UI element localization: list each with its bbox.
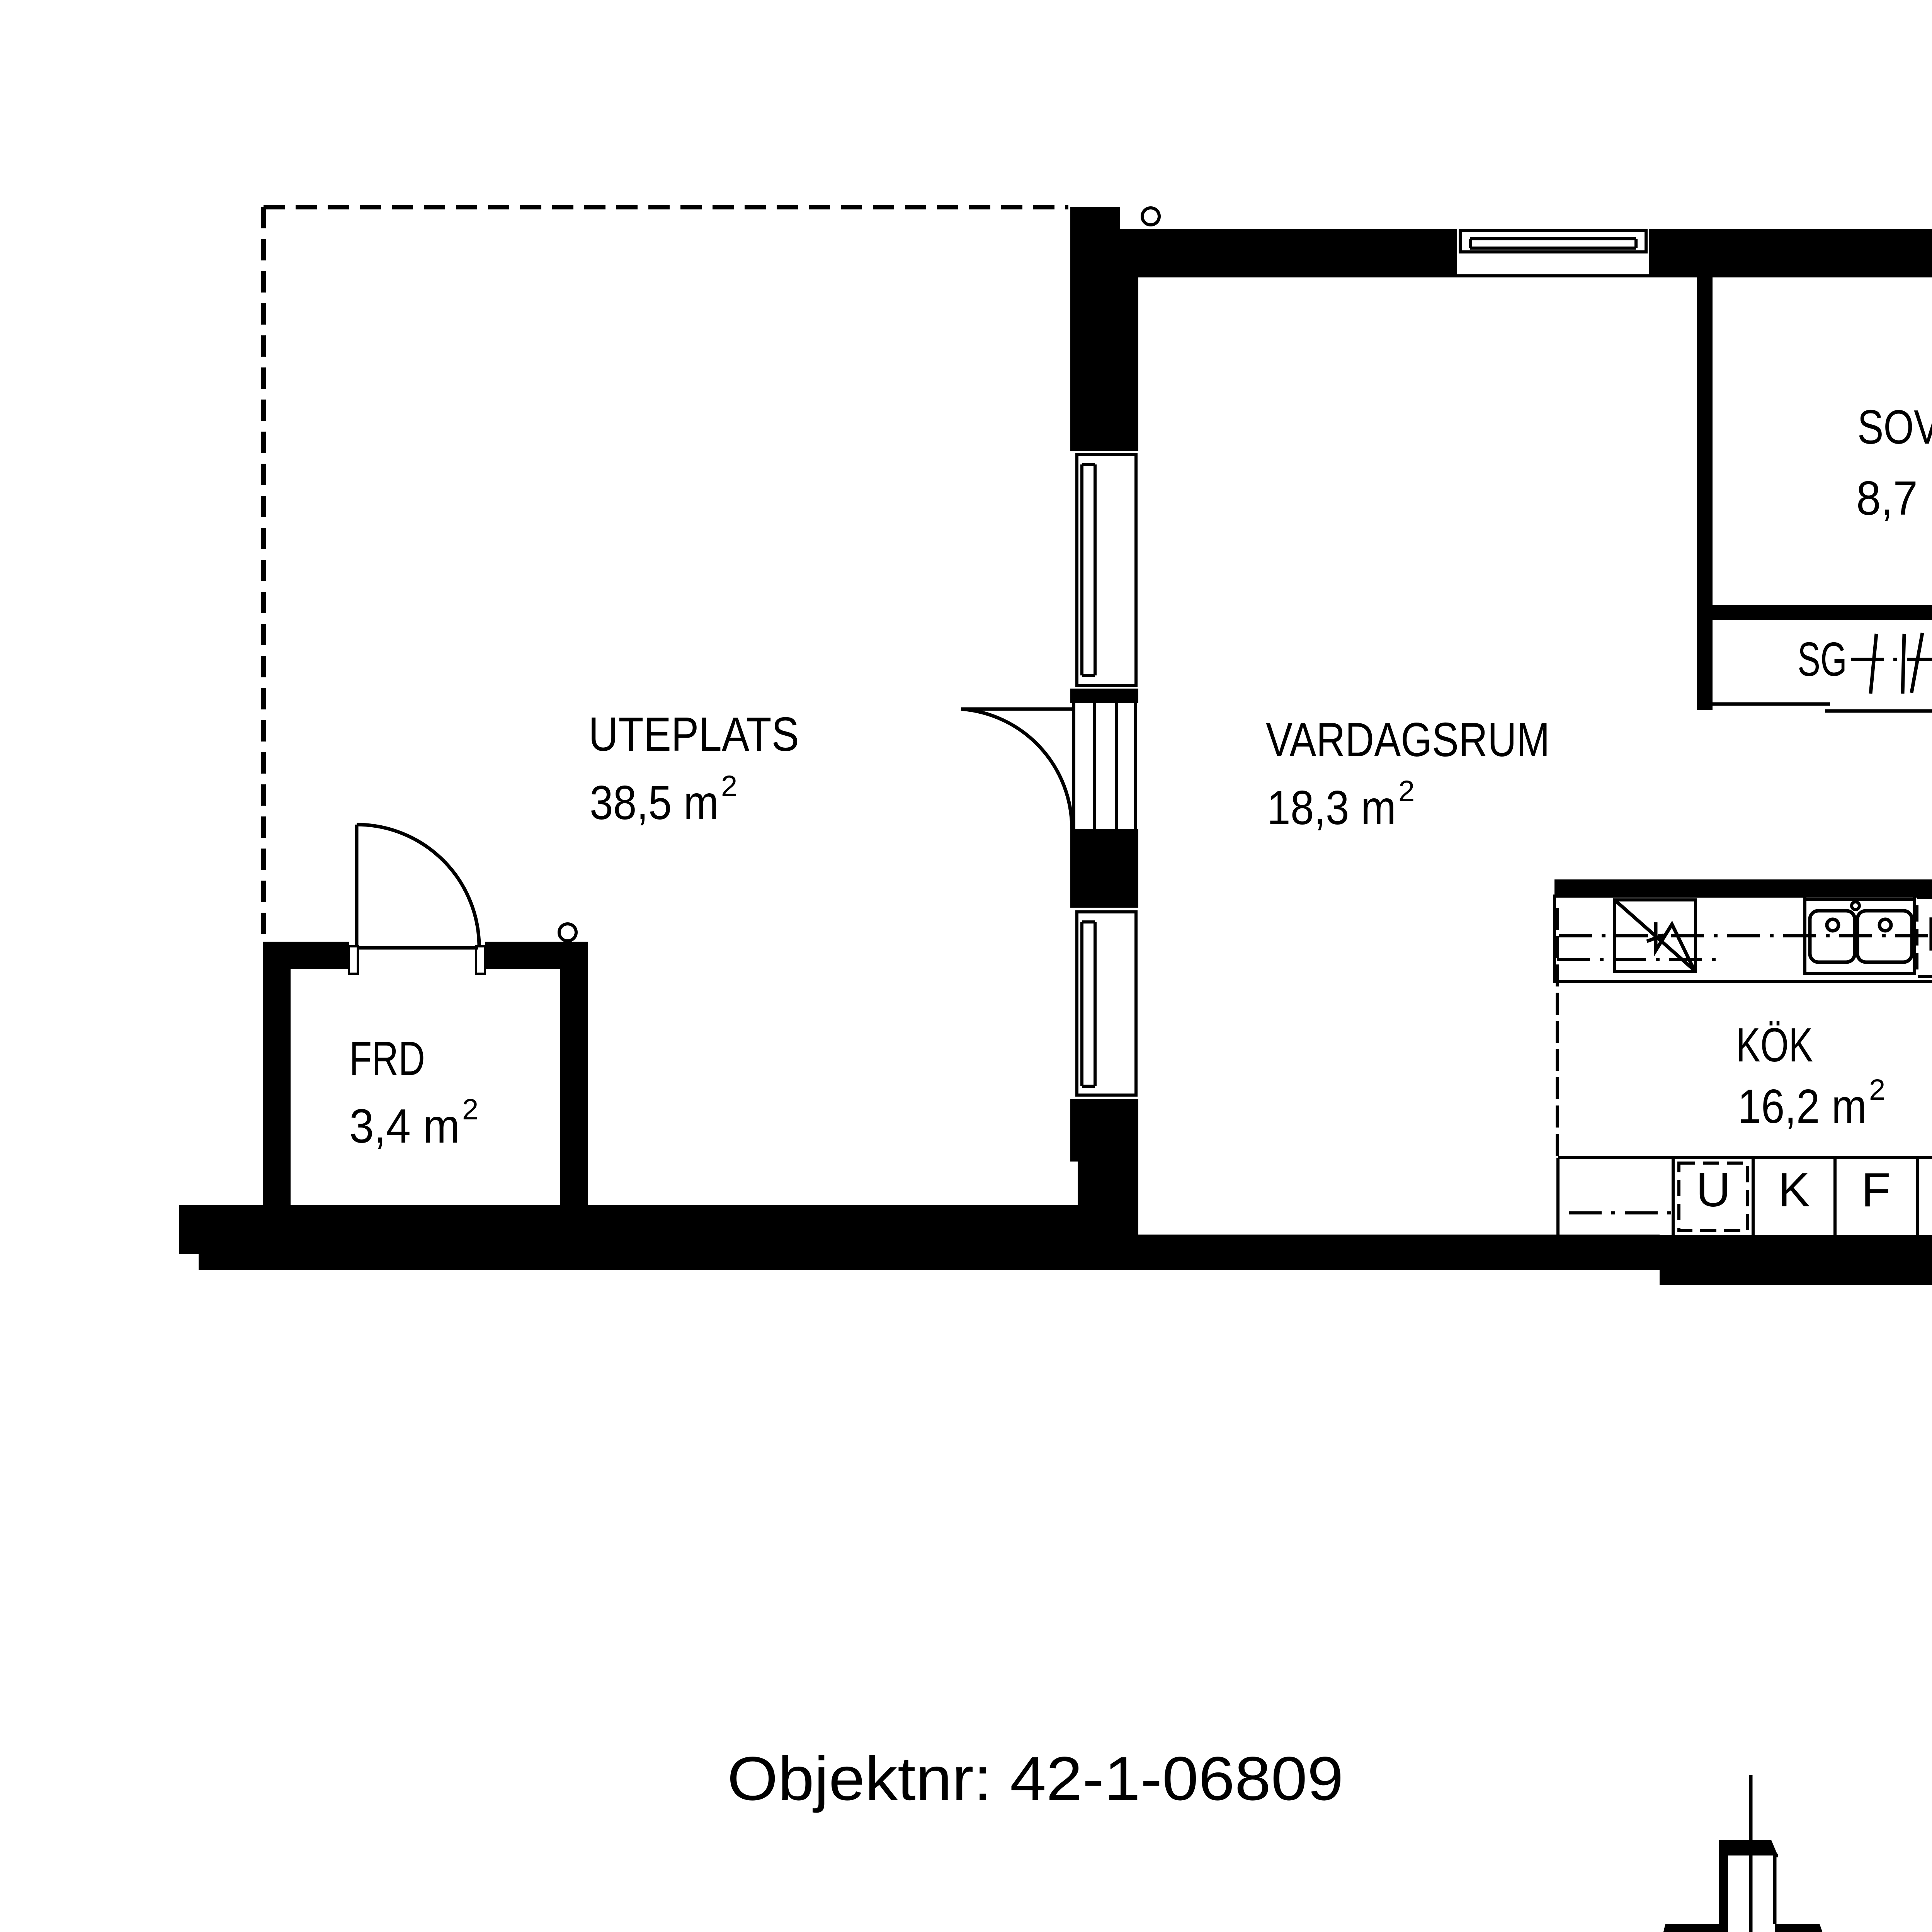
svg-text:F: F [1861, 1163, 1891, 1217]
svg-text:K: K [1778, 1163, 1810, 1217]
svg-text:18,3 m2: 18,3 m2 [1267, 775, 1415, 835]
svg-text:KÖK: KÖK [1736, 1019, 1813, 1072]
svg-text:16,2 m2: 16,2 m2 [1738, 1073, 1885, 1133]
svg-text:SG: SG [1798, 633, 1847, 686]
svg-text:Objektnr: 42-1-06809: Objektnr: 42-1-06809 [727, 1744, 1344, 1813]
svg-text:8,7 m2: 8,7 m2 [1856, 465, 1932, 525]
svg-text:UTEPLATS: UTEPLATS [588, 708, 799, 761]
svg-text:U: U [1696, 1163, 1731, 1217]
svg-text:38,5 m2: 38,5 m2 [590, 770, 737, 830]
svg-text:DM: DM [1927, 908, 1932, 961]
svg-text:3,4 m2: 3,4 m2 [349, 1093, 478, 1153]
svg-text:FRD: FRD [349, 1032, 425, 1085]
svg-text:SOVRUM 1: SOVRUM 1 [1857, 401, 1932, 454]
svg-text:VARDAGSRUM: VARDAGSRUM [1266, 713, 1550, 767]
